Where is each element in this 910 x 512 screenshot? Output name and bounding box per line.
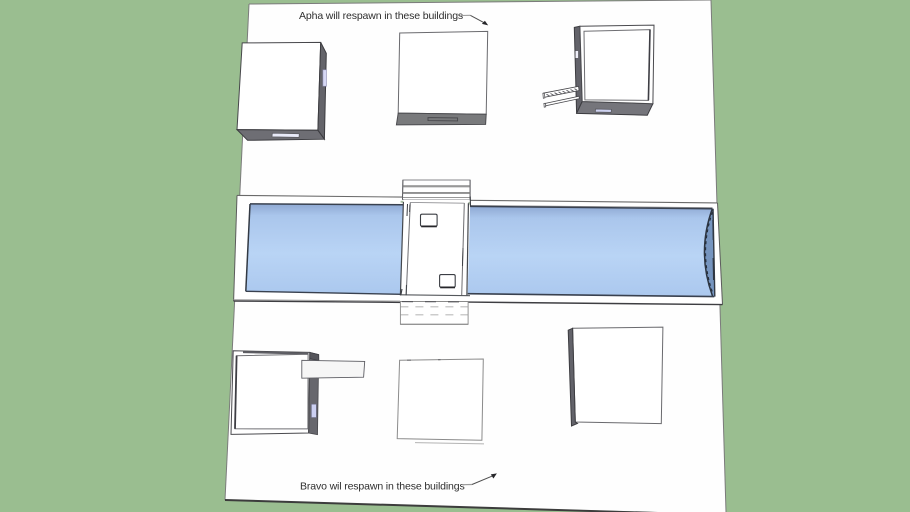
svg-text:Apha will respawn in these bui: Apha will respawn in these buildings <box>299 10 463 22</box>
svg-text:Bravo wil respawn in these bui: Bravo wil respawn in these buildings <box>300 480 465 492</box>
